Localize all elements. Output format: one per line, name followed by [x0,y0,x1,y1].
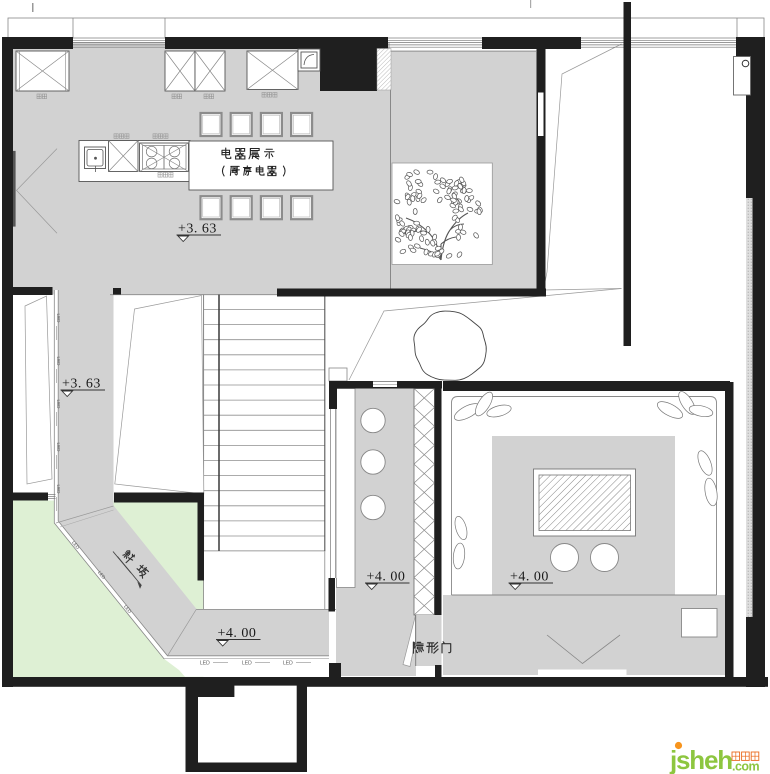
svg-text:+3. 63: +3. 63 [62,377,101,392]
svg-text:LED: LED [242,661,252,667]
svg-text:jsheh: jsheh [669,745,732,774]
svg-text:+3. 63: +3. 63 [178,222,217,237]
svg-text:LED: LED [283,661,293,667]
svg-text:LED: LED [56,485,61,495]
svg-text:+4. 00: +4. 00 [510,570,549,585]
svg-text:+4. 00: +4. 00 [367,570,406,585]
svg-text:+4. 00: +4. 00 [218,626,257,641]
svg-text:LED: LED [56,357,61,367]
svg-text:LED: LED [56,400,61,410]
svg-text:LED: LED [200,661,210,667]
svg-text:.com: .com [732,760,760,774]
svg-text:LED: LED [56,443,61,453]
svg-text:LED: LED [56,314,61,324]
